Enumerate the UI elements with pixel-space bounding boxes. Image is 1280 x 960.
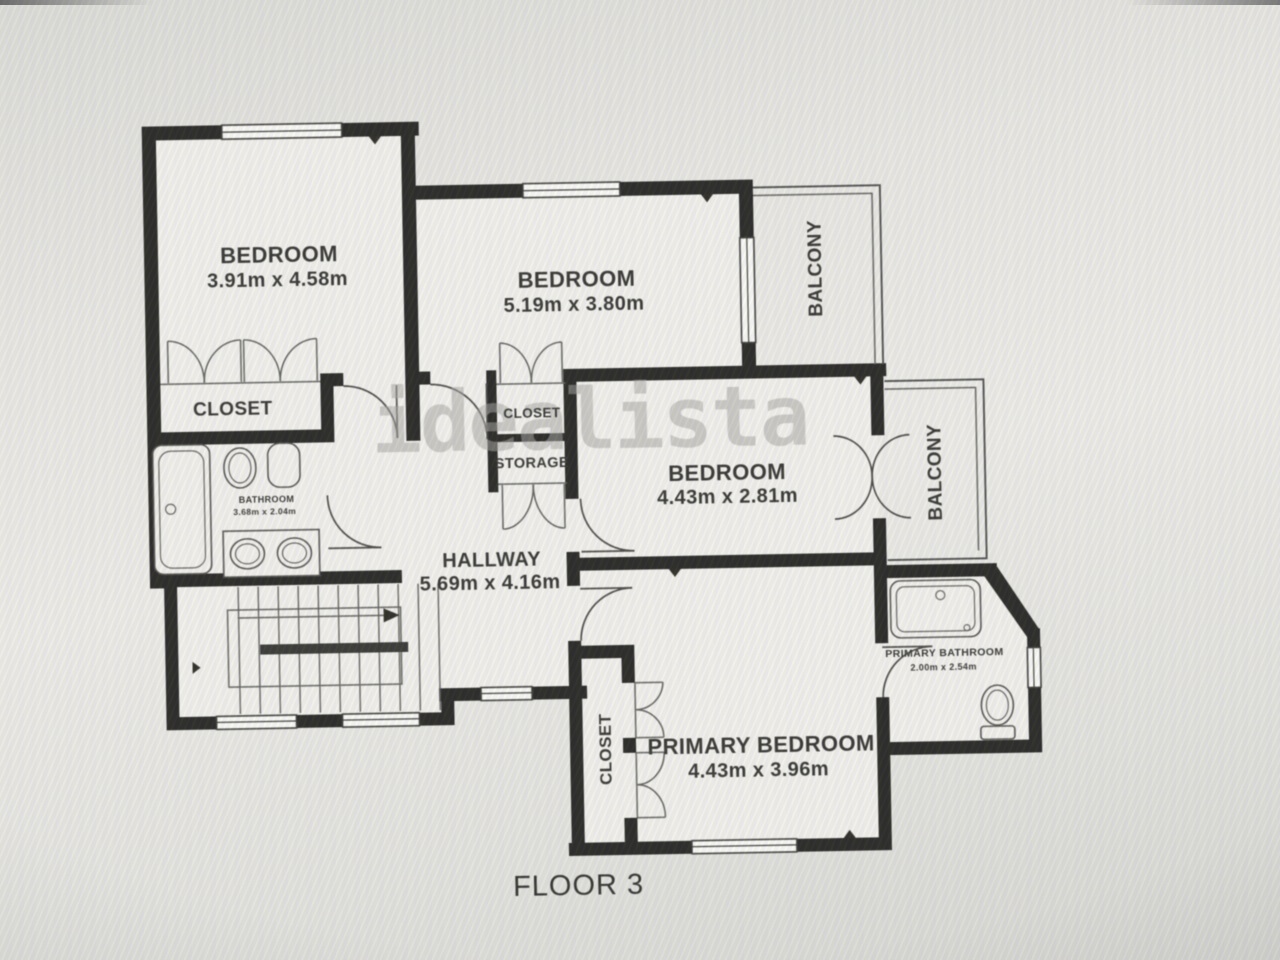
bathroom-label: BATHROOM — [239, 494, 295, 505]
primary-bathroom-label: PRIMARY BATHROOM — [885, 646, 1003, 660]
window — [1027, 647, 1041, 687]
bathtub — [152, 445, 211, 575]
bedroom-top-middle-label: BEDROOM — [517, 266, 635, 293]
primary-bedroom-floor — [570, 558, 885, 854]
sink — [267, 443, 300, 488]
window — [692, 839, 797, 854]
vanity-double-sink — [223, 530, 320, 578]
primary-toilet — [980, 685, 1015, 740]
toilet — [224, 448, 257, 489]
bedroom-top-left-dims: 3.91m x 4.58m — [207, 268, 348, 293]
window — [523, 182, 620, 198]
floor-plan-svg: idealista BEDROOM 3.91m x 4.58m BEDROOM … — [0, 0, 1280, 960]
window — [481, 687, 532, 701]
window — [222, 123, 342, 139]
bathroom-dims: 3.68m x 2.04m — [233, 506, 296, 517]
bedroom-top-left-label: BEDROOM — [220, 241, 338, 268]
floorplan-photo: idealista BEDROOM 3.91m x 4.58m BEDROOM … — [0, 0, 1280, 960]
window — [216, 715, 296, 729]
watermark: idealista — [370, 367, 809, 473]
hallway-dims: 5.69m x 4.16m — [419, 571, 560, 596]
storage-label: STORAGE — [495, 455, 570, 472]
hallway-label: HALLWAY — [442, 548, 541, 572]
bedroom-top-middle-dims: 5.19m x 3.80m — [503, 293, 644, 318]
closet-top-left-label: CLOSET — [193, 398, 273, 420]
closet-middle-label: CLOSET — [503, 405, 561, 421]
window — [342, 713, 419, 727]
bedroom-middle-right-label: BEDROOM — [668, 459, 786, 486]
primary-bathtub — [890, 579, 981, 638]
balcony-middle-label: BALCONY — [924, 424, 947, 521]
primary-bedroom-label: PRIMARY BEDROOM — [647, 730, 875, 759]
window — [740, 238, 756, 343]
primary-bedroom-dims: 4.43m x 3.96m — [688, 758, 829, 783]
primary-bathroom-dims: 2.00m x 2.54m — [910, 661, 976, 672]
floor-title: FLOOR 3 — [513, 869, 645, 903]
balcony-top-label: BALCONY — [804, 220, 827, 317]
bedroom-middle-right-dims: 4.43m x 2.81m — [657, 485, 798, 510]
closet-primary-label: CLOSET — [595, 713, 615, 785]
floor-plan: idealista BEDROOM 3.91m x 4.58m BEDROOM … — [0, 0, 1280, 960]
